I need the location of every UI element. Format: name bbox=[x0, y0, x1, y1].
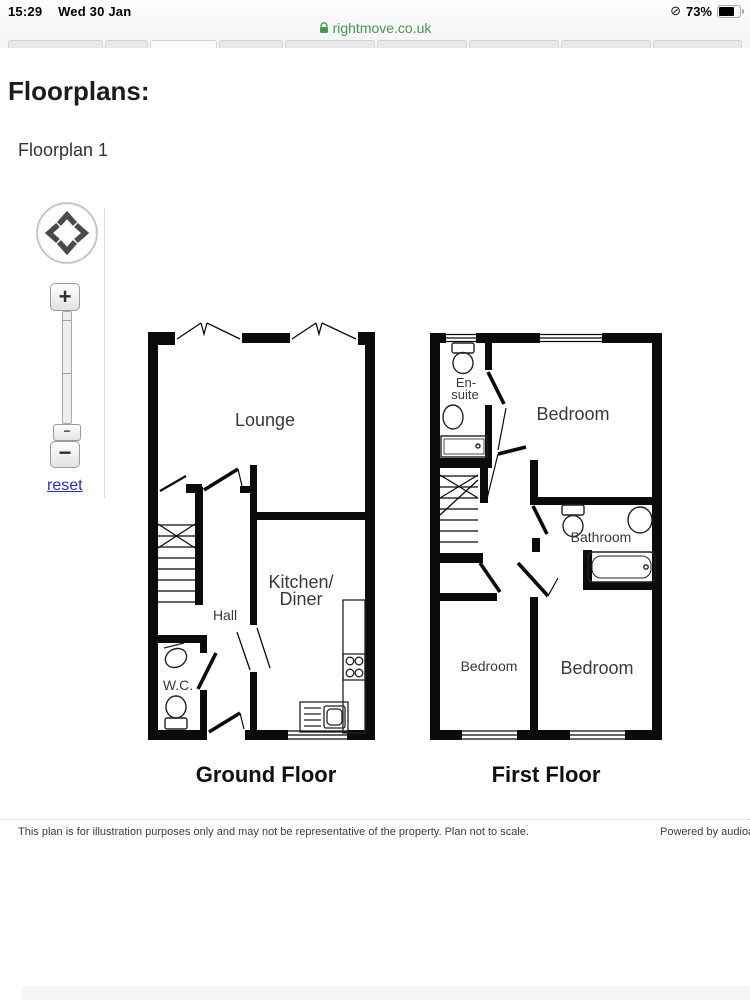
room-label-bathroom: Bathroom bbox=[571, 529, 632, 545]
safari-tab-top[interactable] bbox=[377, 40, 467, 48]
reset-link[interactable]: reset bbox=[47, 477, 83, 495]
status-time: 15:29 bbox=[8, 4, 42, 19]
battery-icon bbox=[717, 5, 741, 18]
lock-icon bbox=[319, 22, 329, 34]
disclaimer-text: This plan is for illustration purposes o… bbox=[18, 826, 529, 838]
safari-tab-top[interactable] bbox=[150, 40, 217, 48]
toilet-icon bbox=[453, 353, 473, 374]
address-bar[interactable]: rightmove.co.uk bbox=[0, 20, 750, 36]
sink-icon bbox=[443, 405, 463, 429]
zoom-slider-handle[interactable]: − bbox=[53, 424, 81, 441]
battery-nub bbox=[742, 9, 745, 14]
room-label-hall: Hall bbox=[213, 607, 237, 623]
page-title: Floorplans: bbox=[8, 76, 150, 107]
sync-icon: ⊘ bbox=[670, 3, 681, 19]
safari-tab-top[interactable] bbox=[653, 40, 742, 48]
address-url: rightmove.co.uk bbox=[333, 20, 432, 36]
floorplan-ground[interactable]: Lounge Kitchen/ Diner Hall W.C. bbox=[140, 320, 385, 745]
first-floor-caption: First Floor bbox=[492, 762, 601, 788]
battery-fill bbox=[719, 7, 734, 16]
counter bbox=[343, 600, 365, 733]
safari-tab-top[interactable] bbox=[8, 40, 103, 48]
slider-tick bbox=[63, 320, 71, 321]
slider-tick bbox=[63, 373, 71, 374]
toilet-icon bbox=[166, 696, 186, 718]
status-right: ⊘ 73% bbox=[670, 3, 741, 19]
control-panel-divider bbox=[104, 208, 105, 498]
status-date: Wed 30 Jan bbox=[58, 4, 131, 19]
footer: This plan is for illustration purposes o… bbox=[0, 819, 750, 850]
zoom-slider-track[interactable] bbox=[62, 311, 72, 424]
ground-floor-caption: Ground Floor bbox=[196, 762, 337, 788]
room-label-kitchen2: Diner bbox=[279, 589, 322, 609]
room-label-wc: W.C. bbox=[163, 677, 193, 693]
status-left: 15:29 Wed 30 Jan bbox=[8, 4, 131, 19]
zoom-out-button[interactable]: − bbox=[50, 441, 80, 468]
kitchen-fixtures bbox=[300, 600, 365, 733]
toilet-tank bbox=[452, 343, 474, 353]
safari-tab-top[interactable] bbox=[561, 40, 651, 48]
safari-tab-top[interactable] bbox=[285, 40, 375, 48]
sink-icon bbox=[162, 645, 190, 671]
safari-tab-top[interactable] bbox=[469, 40, 559, 48]
tab-strip bbox=[0, 40, 750, 48]
room-label-bedroom-master: Bedroom bbox=[536, 404, 609, 424]
stairs bbox=[158, 524, 195, 602]
safari-tab-top[interactable] bbox=[105, 40, 148, 48]
zoom-in-button[interactable]: + bbox=[50, 283, 80, 311]
room-label-lounge: Lounge bbox=[235, 410, 295, 430]
safari-tab-top[interactable] bbox=[219, 40, 283, 48]
stairs bbox=[440, 475, 478, 542]
toilet-tank bbox=[562, 505, 584, 515]
powered-by-text: Powered by audioa bbox=[660, 826, 750, 838]
floorplan-subtitle: Floorplan 1 bbox=[18, 140, 108, 161]
room-label-bedroom-right: Bedroom bbox=[560, 658, 633, 678]
room-label-ensuite2: suite bbox=[451, 387, 478, 402]
room-label-bedroom-left: Bedroom bbox=[461, 658, 518, 674]
battery-percent: 73% bbox=[686, 4, 712, 19]
bottom-bar bbox=[22, 986, 750, 1000]
floorplan-first[interactable]: En- suite Bedroom Bathroom Bedroom Bedro… bbox=[420, 320, 665, 745]
browser-chrome: 15:29 Wed 30 Jan ⊘ 73% rightmove.co.uk bbox=[0, 0, 750, 48]
sink-icon bbox=[628, 507, 652, 533]
screen: 15:29 Wed 30 Jan ⊘ 73% rightmove.co.uk bbox=[0, 0, 750, 1000]
pan-control[interactable] bbox=[35, 201, 99, 265]
